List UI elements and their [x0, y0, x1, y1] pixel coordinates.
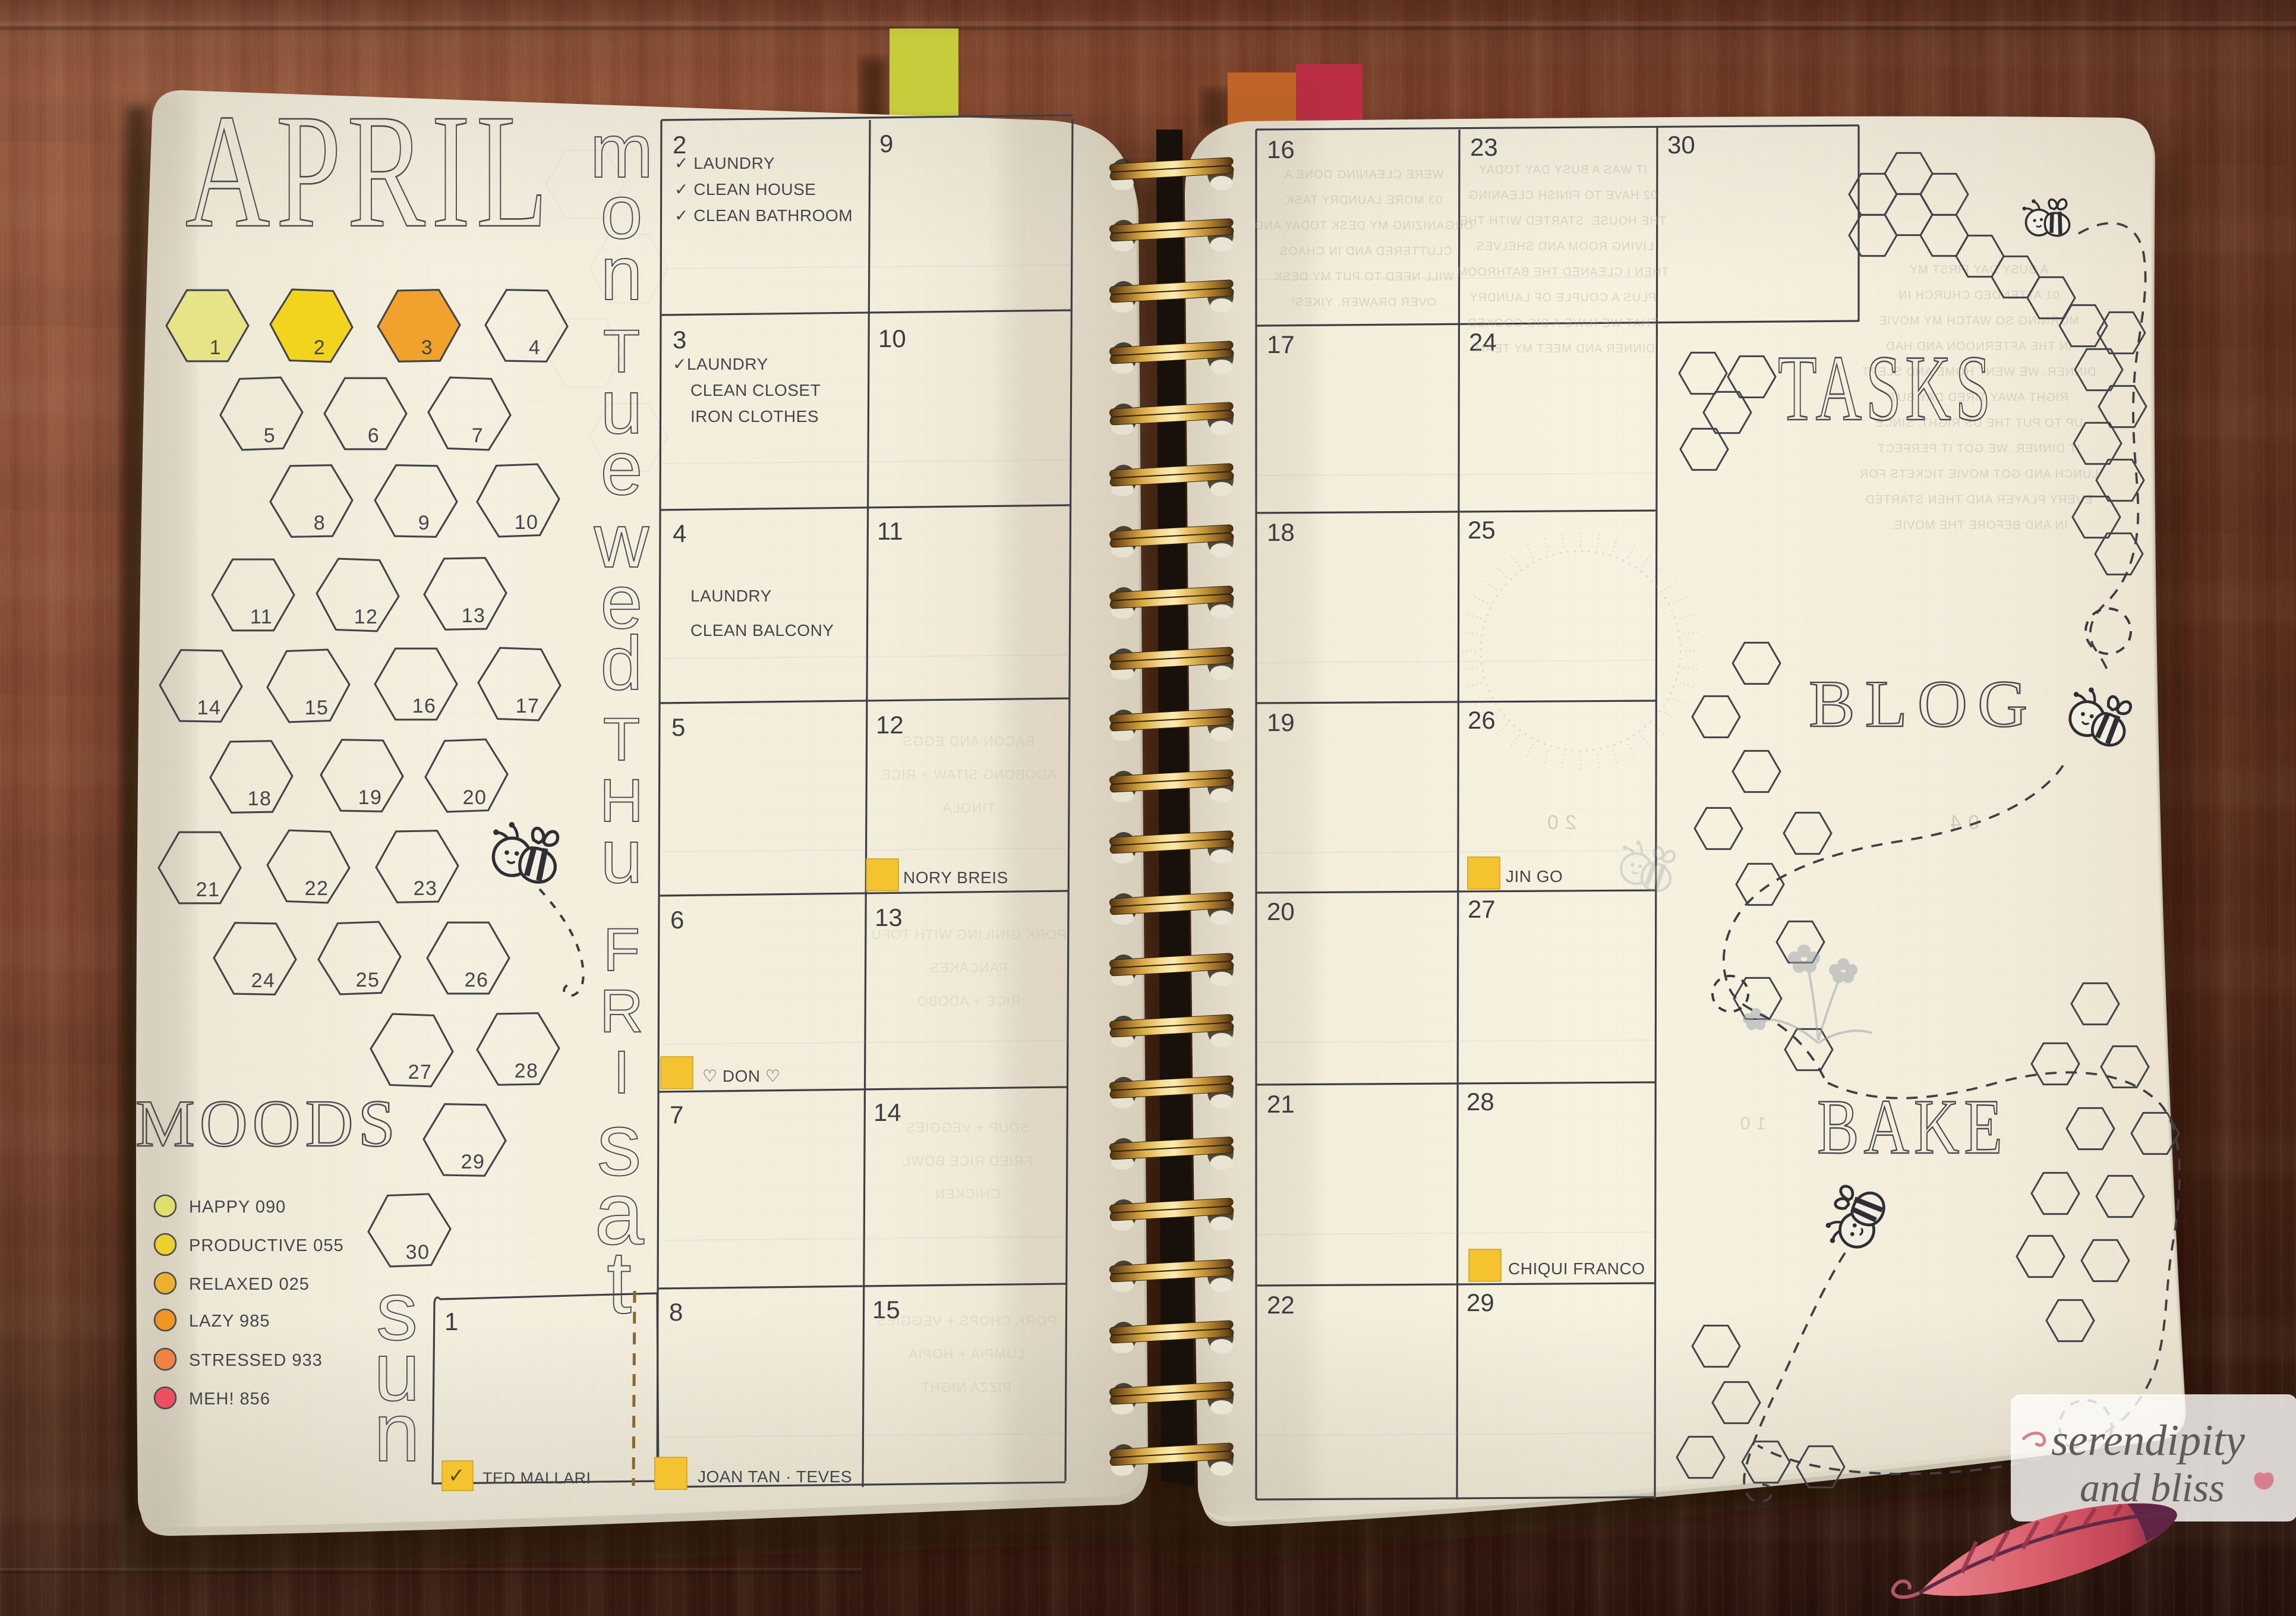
svg-text:BLOG: BLOG [1809, 667, 2038, 741]
svg-text:3: 3 [673, 326, 686, 354]
svg-text:APRIL: APRIL [185, 81, 554, 262]
svg-text:4: 4 [673, 519, 686, 547]
svg-text:11: 11 [877, 517, 903, 545]
svg-text:29: 29 [1466, 1289, 1494, 1316]
svg-text:5: 5 [264, 424, 276, 447]
svg-text:26: 26 [1468, 706, 1496, 734]
svg-text:10: 10 [878, 325, 906, 352]
svg-text:28: 28 [1466, 1088, 1494, 1116]
svg-text:F: F [603, 916, 640, 984]
svg-text:MEH! 856: MEH! 856 [189, 1390, 270, 1409]
svg-text:13: 13 [462, 604, 486, 627]
svg-text:WILL NEED TO PUT MY DESK: WILL NEED TO PUT MY DESK [1273, 270, 1454, 283]
svg-text:CHIQUI FRANCO: CHIQUI FRANCO [1508, 1259, 1645, 1278]
svg-text:IRON CLOTHES: IRON CLOTHES [690, 407, 819, 426]
svg-text:23: 23 [414, 877, 438, 900]
svg-text:CLEAN BALCONY: CLEAN BALCONY [690, 621, 834, 640]
svg-text:n: n [600, 231, 642, 316]
svg-text:T: T [603, 705, 640, 773]
svg-text:12: 12 [354, 606, 379, 628]
svg-text:21: 21 [1267, 1090, 1295, 1118]
svg-text:2 0: 2 0 [1547, 811, 1576, 834]
svg-text:t: t [607, 1232, 632, 1332]
svg-text:CLEAN CLOSET: CLEAN CLOSET [690, 381, 821, 399]
svg-text:BACON AND EGGS: BACON AND EGGS [903, 733, 1035, 749]
svg-text:✓ CLEAN HOUSE: ✓ CLEAN HOUSE [674, 180, 816, 199]
svg-text:LUMPIA + HOPIA: LUMPIA + HOPIA [908, 1346, 1024, 1362]
svg-text:01 ATTENDED CHURCH IN: 01 ATTENDED CHURCH IN [1898, 289, 2060, 302]
svg-text:and bliss: and bliss [2080, 1465, 2225, 1510]
svg-text:CLUTTERED AND IN CHAOS.: CLUTTERED AND IN CHAOS. [1275, 245, 1452, 258]
svg-text:28: 28 [515, 1060, 539, 1082]
svg-text:CHICKEN: CHICKEN [935, 1186, 1001, 1202]
svg-text:27: 27 [1468, 895, 1496, 923]
svg-text:8: 8 [314, 512, 326, 534]
svg-text:BAKE: BAKE [1817, 1083, 2007, 1170]
svg-text:PLUS A COUPLE OF LAUNDRY: PLUS A COUPLE OF LAUNDRY [1469, 291, 1657, 304]
svg-text:IT DINNER. WE GOT IT PERFECT: IT DINNER. WE GOT IT PERFECT [1877, 442, 2080, 455]
svg-text:17: 17 [1267, 330, 1295, 358]
svg-text:✓ CLEAN BATHROOM: ✓ CLEAN BATHROOM [674, 206, 853, 225]
svg-text:IT WAS A BUSY DAY TODAY: IT WAS A BUSY DAY TODAY [1478, 163, 1647, 177]
svg-text:1: 1 [444, 1308, 458, 1335]
svg-text:TASKS: TASKS [1778, 336, 1995, 440]
svg-text:29: 29 [461, 1151, 485, 1173]
svg-text:THAT WE HAVE A BIG COOKED: THAT WE HAVE A BIG COOKED [1468, 317, 1658, 330]
svg-text:2: 2 [314, 336, 326, 359]
svg-text:7: 7 [670, 1101, 683, 1129]
svg-text:STRESSED 933: STRESSED 933 [189, 1351, 323, 1370]
svg-text:TED MALLARI: TED MALLARI [482, 1469, 591, 1487]
svg-text:NORY BREIS: NORY BREIS [903, 868, 1008, 887]
svg-text:ORGANIZING MY DESK TODAY AND: ORGANIZING MY DESK TODAY AND [1254, 219, 1473, 232]
svg-text:22: 22 [1267, 1291, 1295, 1319]
svg-text:LAUNDRY: LAUNDRY [690, 587, 772, 605]
svg-text:26: 26 [465, 969, 489, 991]
svg-text:6: 6 [368, 424, 380, 447]
svg-text:♡ DON ♡: ♡ DON ♡ [702, 1067, 780, 1085]
svg-text:20: 20 [463, 786, 487, 809]
svg-text:✓ LAUNDRY: ✓ LAUNDRY [674, 154, 775, 172]
svg-text:18: 18 [1267, 518, 1295, 546]
svg-text:14: 14 [197, 697, 222, 719]
svg-text:LIVING ROOM AND SHELVES.: LIVING ROOM AND SHELVES. [1472, 240, 1654, 253]
svg-text:LUNCH AND GOT MOVIE TICKETS FO: LUNCH AND GOT MOVIE TICKETS FOR [1859, 468, 2099, 481]
svg-text:24: 24 [251, 969, 276, 992]
svg-text:9: 9 [418, 512, 430, 534]
svg-text:d: d [600, 621, 642, 706]
svg-text:25: 25 [1468, 516, 1496, 544]
svg-text:9: 9 [879, 130, 893, 157]
svg-text:ADOBONG SITAW + RICE: ADOBONG SITAW + RICE [881, 767, 1056, 782]
svg-text:5: 5 [671, 713, 685, 741]
svg-text:1: 1 [210, 336, 222, 359]
svg-text:SOUP + VEGGIES: SOUP + VEGGIES [906, 1120, 1030, 1135]
svg-text:EVERY PLAYER AND THEN STARTED: EVERY PLAYER AND THEN STARTED [1865, 493, 2092, 506]
svg-text:19: 19 [1267, 708, 1295, 736]
svg-text:30: 30 [1667, 131, 1695, 159]
svg-text:A BUSY DAY FIRST MY: A BUSY DAY FIRST MY [1909, 263, 2048, 276]
svg-text:8: 8 [669, 1298, 683, 1326]
svg-text:18: 18 [248, 787, 272, 810]
svg-text:20: 20 [1267, 897, 1295, 925]
svg-text:22: 22 [305, 877, 329, 900]
svg-text:21: 21 [196, 878, 220, 901]
svg-text:DINNER AND MEET MY TEAM.: DINNER AND MEET MY TEAM. [1471, 342, 1655, 355]
svg-text:THE HOUSE. STARTED WITH THE: THE HOUSE. STARTED WITH THE [1459, 215, 1666, 228]
svg-text:12: 12 [876, 711, 904, 739]
svg-text:✓LAUNDRY: ✓LAUNDRY [673, 355, 768, 373]
svg-text:30: 30 [406, 1241, 430, 1264]
svg-text:MORNING SO WATCH MY MOVIE: MORNING SO WATCH MY MOVIE [1878, 314, 2079, 327]
svg-text:JOAN TAN · TEVES: JOAN TAN · TEVES [698, 1467, 852, 1486]
svg-text:MOODS: MOODS [135, 1087, 400, 1161]
svg-text:25: 25 [356, 969, 380, 991]
svg-text:11: 11 [250, 606, 273, 628]
svg-text:n: n [374, 1385, 420, 1479]
svg-text:02 HAVE TO FINISH CLEANING: 02 HAVE TO FINISH CLEANING [1468, 189, 1657, 202]
svg-text:10: 10 [515, 511, 539, 534]
svg-text:1 0: 1 0 [1740, 1114, 1767, 1133]
svg-text:RELAXED 025: RELAXED 025 [189, 1275, 310, 1294]
svg-text:R: R [600, 977, 644, 1045]
svg-text:3: 3 [421, 336, 433, 359]
svg-text:PIZZA NIGHT: PIZZA NIGHT [921, 1379, 1012, 1395]
svg-text:PANCAKES: PANCAKES [929, 960, 1008, 975]
svg-text:OVER DRAWER. YIKES!: OVER DRAWER. YIKES! [1291, 296, 1437, 309]
svg-text:✓: ✓ [448, 1464, 465, 1487]
svg-text:14: 14 [873, 1098, 901, 1126]
svg-text:4: 4 [529, 336, 541, 359]
svg-text:u: u [600, 814, 642, 899]
svg-text:WERE CLEANING DONE A: WERE CLEANING DONE A [1284, 168, 1444, 181]
svg-text:16: 16 [412, 695, 437, 717]
svg-text:JIN GO: JIN GO [1506, 867, 1563, 886]
svg-text:TINOLA: TINOLA [942, 800, 995, 815]
svg-text:serendipity: serendipity [2051, 1416, 2245, 1465]
svg-text:PRODUCTIVE 055: PRODUCTIVE 055 [189, 1236, 344, 1255]
svg-text:PORK CHOPS + VEGGIES: PORK CHOPS + VEGGIES [876, 1313, 1056, 1328]
svg-text:15: 15 [305, 697, 329, 719]
svg-text:LAZY 985: LAZY 985 [189, 1312, 270, 1331]
svg-text:IN AND BEFORE THE MOVIE.: IN AND BEFORE THE MOVIE. [1890, 519, 2067, 532]
svg-text:THEN I CLEANED THE BATHROOM: THEN I CLEANED THE BATHROOM [1456, 266, 1669, 279]
svg-text:7: 7 [472, 424, 484, 447]
svg-text:17: 17 [516, 695, 540, 717]
svg-text:23: 23 [1470, 133, 1498, 161]
svg-text:6: 6 [670, 906, 684, 934]
svg-text:27: 27 [408, 1061, 433, 1083]
svg-text:FRIED RICE BOWL: FRIED RICE BOWL [902, 1153, 1032, 1168]
svg-text:HAPPY 090: HAPPY 090 [189, 1198, 286, 1217]
svg-text:16: 16 [1267, 136, 1295, 163]
svg-text:03 MORE LAUNDRY TASK: 03 MORE LAUNDRY TASK [1285, 194, 1442, 207]
svg-text:PORK GINILING WITH TOFU: PORK GINILING WITH TOFU [871, 927, 1067, 942]
svg-text:RICE + ADOBO: RICE + ADOBO [917, 993, 1021, 1009]
svg-text:19: 19 [358, 786, 383, 809]
